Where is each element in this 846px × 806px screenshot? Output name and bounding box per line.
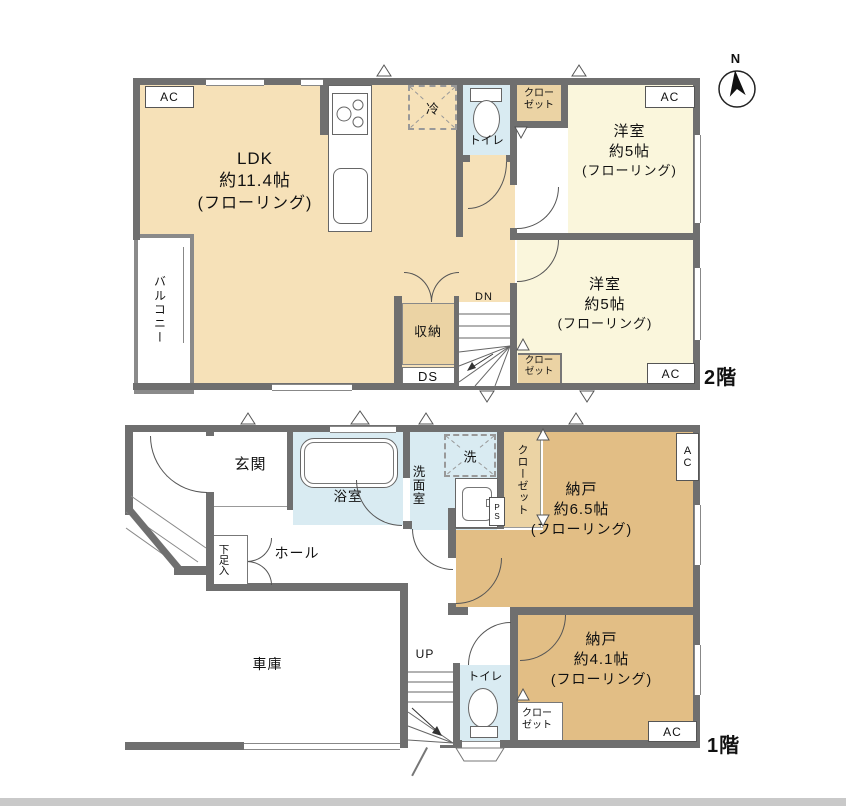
room-size: 約4.1帖 (510, 650, 693, 670)
closet-2f-top-label: クロー ゼット (517, 88, 561, 111)
closet-1f-small-label: クロー ゼット (513, 708, 561, 731)
wall-segment (456, 155, 470, 162)
floor2-label: 2階 (704, 361, 737, 390)
front-door-arc (150, 436, 207, 493)
wall-segment (206, 583, 402, 591)
washroom-door-arc (412, 529, 453, 570)
stove (332, 93, 368, 135)
window (694, 505, 701, 565)
room-size: 約11.4帖 (150, 170, 360, 192)
wall-segment (510, 283, 517, 385)
wall-segment (403, 521, 412, 529)
stairs-dn-label: DN (462, 290, 506, 305)
room-size: 約6.5帖 (470, 500, 693, 520)
room-name: 納戸 (510, 630, 693, 650)
closet-door-mark (536, 514, 550, 527)
door-arc-bedroom1 (517, 187, 559, 229)
closet-text: クロー (517, 88, 561, 100)
bathroom-label: 浴室 (293, 488, 403, 506)
ac-text: AC (661, 90, 680, 104)
garage-entry-door-leaf (411, 747, 428, 776)
wall-segment (133, 85, 140, 240)
closet-text: ゼット (518, 367, 560, 378)
vent-mark (479, 390, 495, 403)
balcony-window (183, 247, 191, 343)
compass-icon (716, 66, 760, 112)
window (206, 79, 264, 86)
window (694, 268, 701, 340)
closet-2f-bottom-label: クロー ゼット (518, 356, 560, 378)
wall-segment (452, 663, 460, 748)
closet-text: ゼット (517, 100, 561, 112)
room-name: 浴室 (293, 488, 403, 506)
wall-segment (510, 228, 517, 240)
closet-text: ゼット (513, 720, 561, 732)
vent-mark (376, 64, 392, 77)
closet-text: クロー (513, 708, 561, 720)
floor1-label: 1階 (707, 729, 740, 758)
stairs-down-2f (459, 302, 510, 386)
ac-badge-ldk: AC (145, 86, 194, 108)
room-finish: (フローリング) (150, 193, 360, 214)
bottom-border-strip (0, 798, 846, 806)
room-size: 約5帖 (566, 142, 693, 162)
shoe-cabinet-label: 下足入 (216, 537, 232, 582)
garage-label: 車庫 (200, 655, 335, 673)
vent-mark (568, 412, 584, 425)
balcony-label: バルコニー (138, 250, 182, 370)
ac-badge-bedroom1: AC (645, 86, 695, 108)
ac-text: AC (663, 725, 682, 739)
up-text: UP (403, 647, 447, 663)
room-name: ホール (237, 544, 357, 562)
vent-mark (350, 410, 370, 425)
wall-segment (517, 233, 693, 240)
vent-mark (571, 64, 587, 77)
closet-door-mark (514, 126, 528, 139)
wall-kitchen-partition (320, 85, 328, 135)
wall-segment (400, 583, 408, 748)
shoe-cabinet-door-bottom (247, 561, 272, 585)
window (330, 426, 396, 433)
hall-label: ホール (237, 544, 357, 562)
ac-text: AC (682, 445, 694, 469)
ldk-label: LDK 約11.4帖 (フローリング) (150, 148, 360, 214)
washer-label: 洗 (461, 446, 478, 465)
storage2-label: 納戸 約4.1帖 (フローリング) (510, 630, 693, 688)
entry-step (452, 748, 508, 764)
wall-segment (400, 740, 408, 748)
approach-slope (126, 496, 210, 582)
vent-mark (240, 412, 256, 425)
room-name: 車庫 (200, 655, 335, 673)
window (694, 135, 701, 223)
ac-badge-storage1: AC (676, 433, 699, 481)
wall-segment (394, 296, 402, 390)
room-name: 下足入 (217, 544, 232, 576)
bedroom2-label: 洋室 約5帖 (フローリング) (517, 275, 693, 332)
room-finish: (フローリング) (470, 520, 693, 538)
room-finish: (フローリング) (510, 670, 693, 688)
toilet-bowl-1f (468, 688, 498, 728)
room-finish: (フローリング) (517, 315, 693, 332)
washer-space: 洗 (444, 434, 496, 477)
vent-mark (418, 412, 434, 425)
ds-text: DS (402, 368, 454, 385)
closet-door-mark (516, 688, 530, 701)
refrigerator-space: 冷 (408, 85, 457, 130)
room-name: 洋室 (566, 122, 693, 142)
washroom-label: 洗面室 (408, 450, 428, 520)
room-name: 洋室 (517, 275, 693, 295)
toilet-tank-1f (470, 726, 498, 738)
closet-door-mark (536, 428, 550, 441)
bathtub-inner (304, 442, 394, 484)
entrance-step-line (214, 506, 287, 507)
room-name: 玄関 (214, 455, 287, 475)
room-name: トイレ (463, 134, 510, 149)
room-name: 洗面室 (409, 465, 428, 506)
ac-badge-storage2: AC (648, 721, 697, 742)
toilet-1f-label: トイレ (460, 670, 510, 685)
refrigerator-label: 冷 (424, 98, 441, 117)
toilet-bowl-2f (473, 100, 500, 138)
wall-segment (206, 425, 214, 436)
dn-text: DN (462, 290, 506, 305)
room-size: 約5帖 (517, 295, 693, 315)
ac-text: AC (662, 367, 681, 381)
wall-segment (561, 78, 568, 128)
balcony-text: バルコニー (152, 275, 169, 345)
storage-label: 収納 (402, 323, 454, 340)
room-finish: (フローリング) (566, 162, 693, 179)
duct-space-label: DS (402, 368, 454, 385)
wall-segment (448, 607, 468, 615)
north-text: N (712, 50, 760, 67)
toilet-2f-label: トイレ (463, 134, 510, 149)
ac-text: AC (160, 90, 179, 104)
wall-segment (510, 607, 700, 615)
floor-plan: 冷 LDK 約11.4帖 (フローリング) 洋室 約5帖 (フローリング) 洋室… (0, 0, 846, 806)
vent-mark (579, 390, 595, 403)
room-name: LDK (150, 148, 360, 170)
landing-door-arc (468, 622, 511, 665)
closet-door-mark (516, 338, 530, 351)
room-name: 納戸 (470, 480, 693, 500)
stairs-up-1f (408, 662, 453, 745)
entrance-label: 玄関 (214, 455, 287, 475)
wall-segment (125, 742, 244, 750)
room-name: トイレ (460, 670, 510, 685)
garage-door-line (244, 743, 400, 750)
stairs-up-label: UP (403, 647, 447, 663)
bedroom1-label: 洋室 約5帖 (フローリング) (566, 122, 693, 179)
window (694, 645, 701, 695)
storage1-label: 納戸 約6.5帖 (フローリング) (470, 480, 693, 538)
window (272, 384, 352, 391)
compass-north-label: N (712, 50, 760, 67)
ac-badge-bedroom2: AC (647, 363, 695, 384)
room-name: 収納 (402, 323, 454, 340)
stove-burners (333, 94, 367, 134)
